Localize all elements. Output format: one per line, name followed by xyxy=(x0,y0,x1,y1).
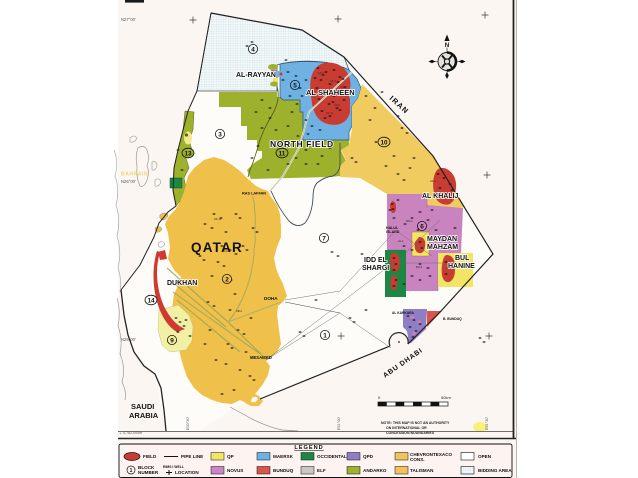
svg-text:MESAIEED: MESAIEED xyxy=(250,355,272,360)
svg-text:4: 4 xyxy=(251,46,255,53)
svg-text:BIDDING AREA: BIDDING AREA xyxy=(478,468,512,473)
svg-text:OPEN: OPEN xyxy=(478,454,492,459)
svg-text:NUMBER: NUMBER xyxy=(138,470,159,475)
svg-text:NORTH FIELD: NORTH FIELD xyxy=(270,139,334,149)
svg-text:AL KARKARA: AL KARKARA xyxy=(392,311,415,315)
svg-text:BUL: BUL xyxy=(455,255,470,262)
svg-text:AS-9: AS-9 xyxy=(334,103,340,107)
svg-text:N27°00': N27°00' xyxy=(121,17,136,22)
svg-text:MAERSK: MAERSK xyxy=(273,454,294,459)
svg-text:ISLAND: ISLAND xyxy=(386,230,400,234)
svg-text:2: 2 xyxy=(225,276,229,283)
svg-text:1: 1 xyxy=(130,468,133,474)
svg-text:QP: QP xyxy=(227,454,234,459)
svg-text:MAYDAN: MAYDAN xyxy=(427,236,457,243)
svg-text:BAHRAIN: BAHRAIN xyxy=(121,172,148,178)
svg-text:TALISMAN: TALISMAN xyxy=(410,468,434,473)
svg-text:1: 1 xyxy=(323,332,327,339)
svg-text:B. BUNDUQ: B. BUNDUQ xyxy=(443,317,462,321)
svg-text:BH-4: BH-4 xyxy=(416,265,422,269)
svg-text:HL-1: HL-1 xyxy=(398,239,404,243)
svg-text:E51°00': E51°00' xyxy=(337,417,341,430)
svg-text:9: 9 xyxy=(170,337,174,344)
svg-text:AS-11: AS-11 xyxy=(326,111,334,115)
svg-text:7: 7 xyxy=(322,235,326,242)
svg-text:AL-RAYYAN: AL-RAYYAN xyxy=(236,72,276,79)
svg-text:LEGEND: LEGEND xyxy=(294,445,323,451)
svg-text:E50°30': E50°30' xyxy=(186,417,190,430)
svg-text:DK-12: DK-12 xyxy=(214,217,222,221)
svg-text:RAS LAFFAN: RAS LAFFAN xyxy=(242,192,266,196)
svg-text:HANINE: HANINE xyxy=(448,263,475,270)
svg-text:ANDARKO: ANDARKO xyxy=(363,468,387,473)
svg-text:IDD EL: IDD EL xyxy=(364,257,388,264)
svg-text:LOCATION: LOCATION xyxy=(175,470,199,475)
svg-text:AS-3: AS-3 xyxy=(330,79,336,83)
svg-text:NOTE: THIS MAP IS NOT AN AUTHO: NOTE: THIS MAP IS NOT AN AUTHORITY xyxy=(381,421,450,425)
svg-text:AL SHAHEEN: AL SHAHEEN xyxy=(306,88,355,97)
svg-text:AL KHALIJ: AL KHALIJ xyxy=(422,193,459,200)
svg-text:11: 11 xyxy=(279,150,286,157)
svg-text:ELF: ELF xyxy=(317,468,326,473)
svg-text:QATAR: QATAR xyxy=(191,240,243,255)
svg-text:DUKHAN: DUKHAN xyxy=(167,280,197,287)
svg-text:RIMS I WELL: RIMS I WELL xyxy=(163,465,184,469)
svg-text:10: 10 xyxy=(380,139,388,146)
svg-text:QPD: QPD xyxy=(363,454,374,459)
svg-text:UB-2: UB-2 xyxy=(236,309,242,313)
svg-text:AS-1: AS-1 xyxy=(318,71,324,75)
svg-text:ON INTERNATIONAL OR: ON INTERNATIONAL OR xyxy=(386,426,427,430)
svg-text:PIPE LINE: PIPE LINE xyxy=(181,454,203,459)
svg-text:OCCIDENTAL: OCCIDENTAL xyxy=(317,454,347,459)
svg-text:ARABIA: ARABIA xyxy=(129,411,159,420)
svg-text:N25°00': N25°00' xyxy=(121,337,136,342)
svg-text:E51°30': E51°30' xyxy=(485,417,489,430)
svg-text:50km: 50km xyxy=(441,395,451,400)
svg-text:NOVUS: NOVUS xyxy=(227,468,243,473)
svg-text:5: 5 xyxy=(293,82,297,89)
svg-text:MAHZAM: MAHZAM xyxy=(427,244,458,251)
svg-text:CONS.: CONS. xyxy=(410,457,425,462)
svg-text:MM-2: MM-2 xyxy=(406,219,413,223)
svg-text:FIELD: FIELD xyxy=(143,454,157,459)
svg-text:N26°00': N26°00' xyxy=(121,179,136,184)
svg-text:SAUDI: SAUDI xyxy=(131,402,154,411)
svg-text:3: 3 xyxy=(218,131,222,138)
svg-text:14: 14 xyxy=(147,297,155,304)
svg-text:13: 13 xyxy=(184,150,192,157)
svg-text:DOHA: DOHA xyxy=(264,296,278,301)
svg-text:BUNDUQ: BUNDUQ xyxy=(273,468,294,473)
svg-text:AK-2: AK-2 xyxy=(430,179,436,183)
svg-text:SHARGI: SHARGI xyxy=(362,265,389,272)
svg-text:6: 6 xyxy=(420,223,424,230)
